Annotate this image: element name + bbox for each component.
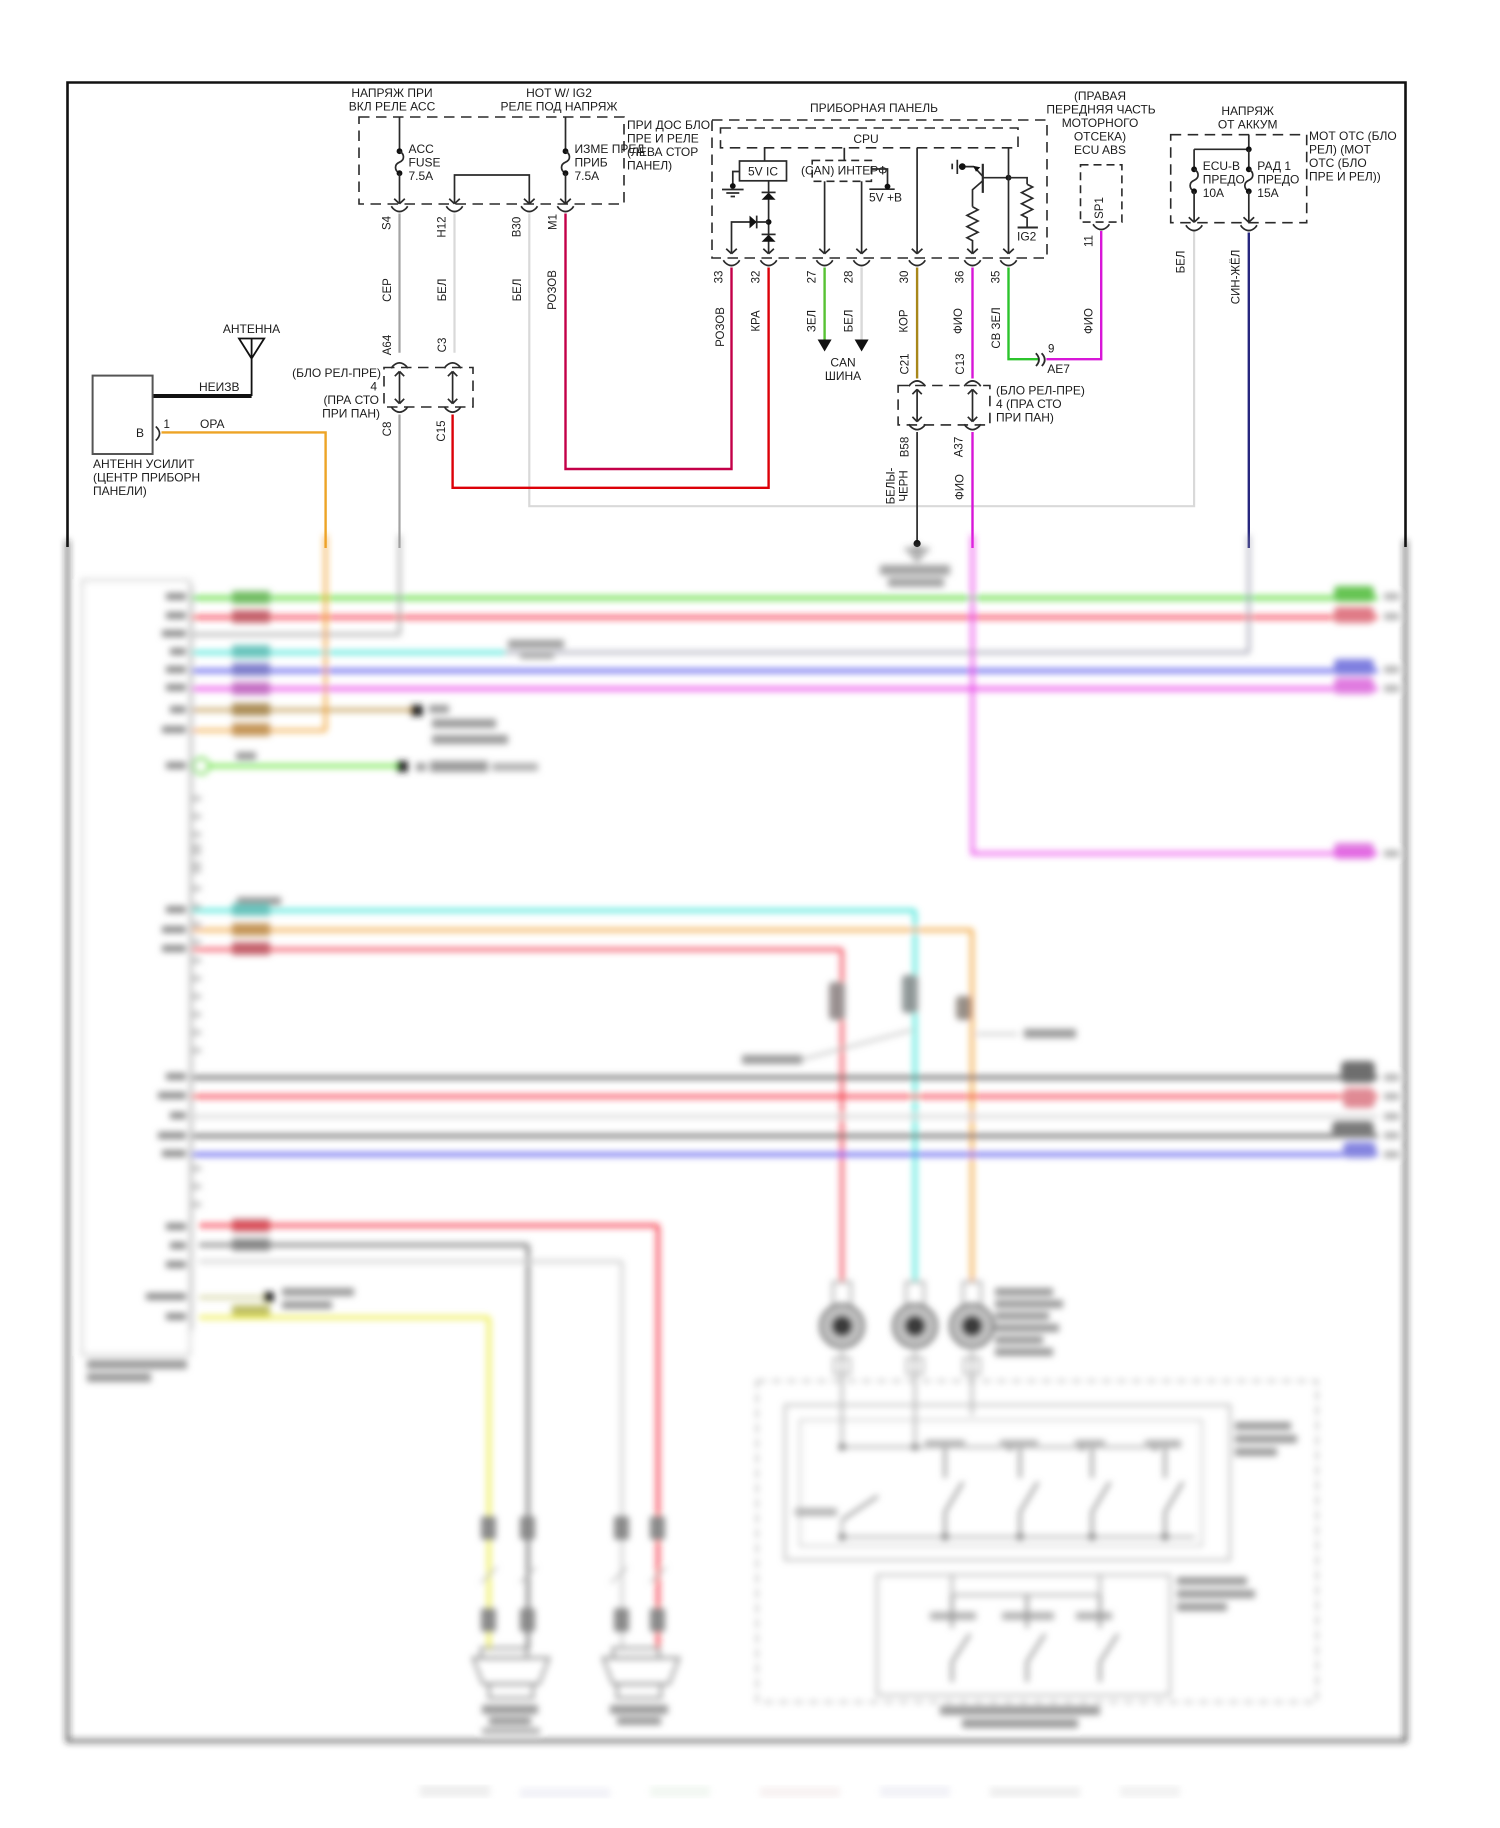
- svg-text:7.5А: 7.5А: [575, 169, 600, 183]
- svg-text:ПРЕДО: ПРЕДО: [1257, 173, 1299, 187]
- svg-text:32: 32: [751, 271, 763, 284]
- svg-text:4 (ПРА СТО: 4 (ПРА СТО: [996, 397, 1062, 411]
- svg-text:HOT W/ IG2: HOT W/ IG2: [526, 86, 592, 100]
- svg-text:ПРИ ПАН): ПРИ ПАН): [996, 411, 1054, 425]
- svg-text:ПРЕДО: ПРЕДО: [1203, 173, 1245, 187]
- svg-text:СЕР: СЕР: [382, 278, 394, 302]
- svg-text:SP1: SP1: [1094, 197, 1106, 219]
- svg-text:ЧЕРН: ЧЕРН: [899, 470, 911, 501]
- svg-text:5V IC: 5V IC: [748, 165, 778, 179]
- svg-text:НАПРЯЖ ПРИ: НАПРЯЖ ПРИ: [351, 86, 432, 100]
- svg-text:ECU-B: ECU-B: [1203, 159, 1240, 173]
- svg-text:БЕЛЫ-: БЕЛЫ-: [886, 467, 898, 504]
- svg-text:33: 33: [714, 271, 726, 284]
- svg-text:A64: A64: [382, 334, 394, 355]
- svg-text:7.5A: 7.5A: [409, 169, 434, 183]
- svg-text:ПРИ ПАН): ПРИ ПАН): [322, 407, 380, 421]
- svg-text:H12: H12: [437, 216, 449, 237]
- svg-text:МОТОРНОГО: МОТОРНОГО: [1062, 116, 1139, 130]
- svg-text:РОЗОВ: РОЗОВ: [715, 307, 727, 347]
- svg-text:11: 11: [1084, 235, 1096, 247]
- svg-text:ОТ АККУМ: ОТ АККУМ: [1218, 118, 1278, 132]
- svg-text:A37: A37: [954, 437, 966, 457]
- svg-text:C13: C13: [955, 353, 967, 374]
- svg-text:РЕЛЕ ПОД НАПРЯЖ: РЕЛЕ ПОД НАПРЯЖ: [500, 100, 617, 114]
- svg-text:C8: C8: [382, 422, 394, 437]
- svg-text:C21: C21: [900, 353, 912, 374]
- svg-text:БЕЛ: БЕЛ: [844, 310, 856, 333]
- svg-text:C15: C15: [436, 420, 448, 441]
- svg-text:ПРИБ: ПРИБ: [575, 156, 608, 170]
- svg-text:ПАНЕЛ): ПАНЕЛ): [627, 159, 672, 173]
- svg-text:15A: 15A: [1257, 186, 1278, 200]
- svg-text:РОЗОВ: РОЗОВ: [547, 270, 559, 310]
- svg-text:АНТЕНН УСИЛИТ: АНТЕНН УСИЛИТ: [93, 457, 195, 471]
- svg-text:СВ ЗЕЛ: СВ ЗЕЛ: [991, 307, 1003, 348]
- svg-text:ПРЕ И РЕЛ)): ПРЕ И РЕЛ)): [1309, 170, 1381, 184]
- svg-text:ФИО: ФИО: [955, 474, 967, 500]
- svg-text:ACC: ACC: [409, 142, 435, 156]
- svg-text:IG2: IG2: [1017, 230, 1037, 244]
- svg-text:В: В: [136, 426, 144, 440]
- svg-text:CAN: CAN: [830, 356, 855, 370]
- svg-text:36: 36: [955, 271, 967, 284]
- svg-text:БЕЛ: БЕЛ: [437, 279, 449, 302]
- svg-text:(CAN) ИНТЕРФ: (CAN) ИНТЕРФ: [801, 164, 887, 178]
- svg-text:АНТЕННА: АНТЕННА: [223, 322, 280, 336]
- svg-text:C3: C3: [437, 338, 449, 353]
- svg-text:CPU: CPU: [853, 132, 878, 146]
- svg-text:S4: S4: [382, 215, 394, 230]
- svg-text:(БЛО РЕЛ-ПРЕ): (БЛО РЕЛ-ПРЕ): [292, 366, 381, 380]
- svg-text:(БЛО РЕЛ-ПРЕ): (БЛО РЕЛ-ПРЕ): [996, 384, 1085, 398]
- svg-text:ПАНЕЛИ): ПАНЕЛИ): [93, 484, 147, 498]
- svg-text:M1: M1: [548, 214, 560, 230]
- svg-text:КОР: КОР: [899, 309, 911, 333]
- svg-text:КРА: КРА: [751, 310, 763, 332]
- svg-text:4: 4: [370, 380, 377, 394]
- svg-text:27: 27: [807, 271, 819, 284]
- svg-text:35: 35: [991, 271, 1003, 284]
- svg-text:ФИО: ФИО: [953, 308, 965, 334]
- svg-text:ОРА: ОРА: [200, 417, 225, 431]
- svg-text:(ПРА СТО: (ПРА СТО: [323, 393, 379, 407]
- svg-text:НЕИЗВ: НЕИЗВ: [199, 380, 240, 394]
- svg-text:B58: B58: [900, 437, 912, 457]
- svg-text:РЕЛ) (МОТ: РЕЛ) (МОТ: [1309, 143, 1372, 157]
- svg-text:28: 28: [844, 271, 856, 284]
- svg-text:FUSE: FUSE: [409, 156, 441, 170]
- svg-text:ФИО: ФИО: [1084, 308, 1096, 334]
- svg-text:ПЕРЕДНЯЯ ЧАСТЬ: ПЕРЕДНЯЯ ЧАСТЬ: [1046, 103, 1155, 117]
- svg-text:ШИНА: ШИНА: [825, 369, 861, 383]
- svg-text:ЗЕЛ: ЗЕЛ: [807, 310, 819, 332]
- svg-text:1: 1: [164, 419, 170, 431]
- svg-text:ПРИБОРНАЯ ПАНЕЛЬ: ПРИБОРНАЯ ПАНЕЛЬ: [810, 101, 938, 115]
- svg-text:ECU ABS: ECU ABS: [1074, 143, 1126, 157]
- svg-text:9: 9: [1048, 344, 1054, 356]
- svg-text:ПРИ ДОС БЛО: ПРИ ДОС БЛО: [627, 118, 710, 132]
- svg-text:(ПРАВАЯ: (ПРАВАЯ: [1074, 89, 1126, 103]
- svg-text:РАД 1: РАД 1: [1257, 159, 1291, 173]
- svg-text:БЕЛ: БЕЛ: [1176, 251, 1188, 274]
- svg-text:ОТСЕКА): ОТСЕКА): [1074, 130, 1126, 144]
- svg-text:5V +B: 5V +B: [869, 191, 902, 205]
- svg-text:ОТС (БЛО: ОТС (БЛО: [1309, 156, 1367, 170]
- svg-text:СИН-ЖЁЛ: СИН-ЖЁЛ: [1231, 250, 1243, 305]
- svg-text:НАПРЯЖ: НАПРЯЖ: [1221, 104, 1274, 118]
- svg-text:30: 30: [899, 271, 911, 284]
- svg-text:МОТ ОТС (БЛО: МОТ ОТС (БЛО: [1309, 129, 1397, 143]
- svg-text:B30: B30: [511, 217, 523, 237]
- svg-text:10A: 10A: [1203, 186, 1224, 200]
- svg-text:AE7: AE7: [1047, 362, 1070, 376]
- svg-text:ВКЛ РЕЛЕ АСС: ВКЛ РЕЛЕ АСС: [349, 100, 436, 114]
- svg-text:ИЗМЕ ПРЕД: ИЗМЕ ПРЕД: [575, 142, 645, 156]
- svg-text:БЕЛ: БЕЛ: [512, 279, 524, 302]
- svg-text:(ЦЕНТР ПРИБОРН: (ЦЕНТР ПРИБОРН: [93, 471, 200, 485]
